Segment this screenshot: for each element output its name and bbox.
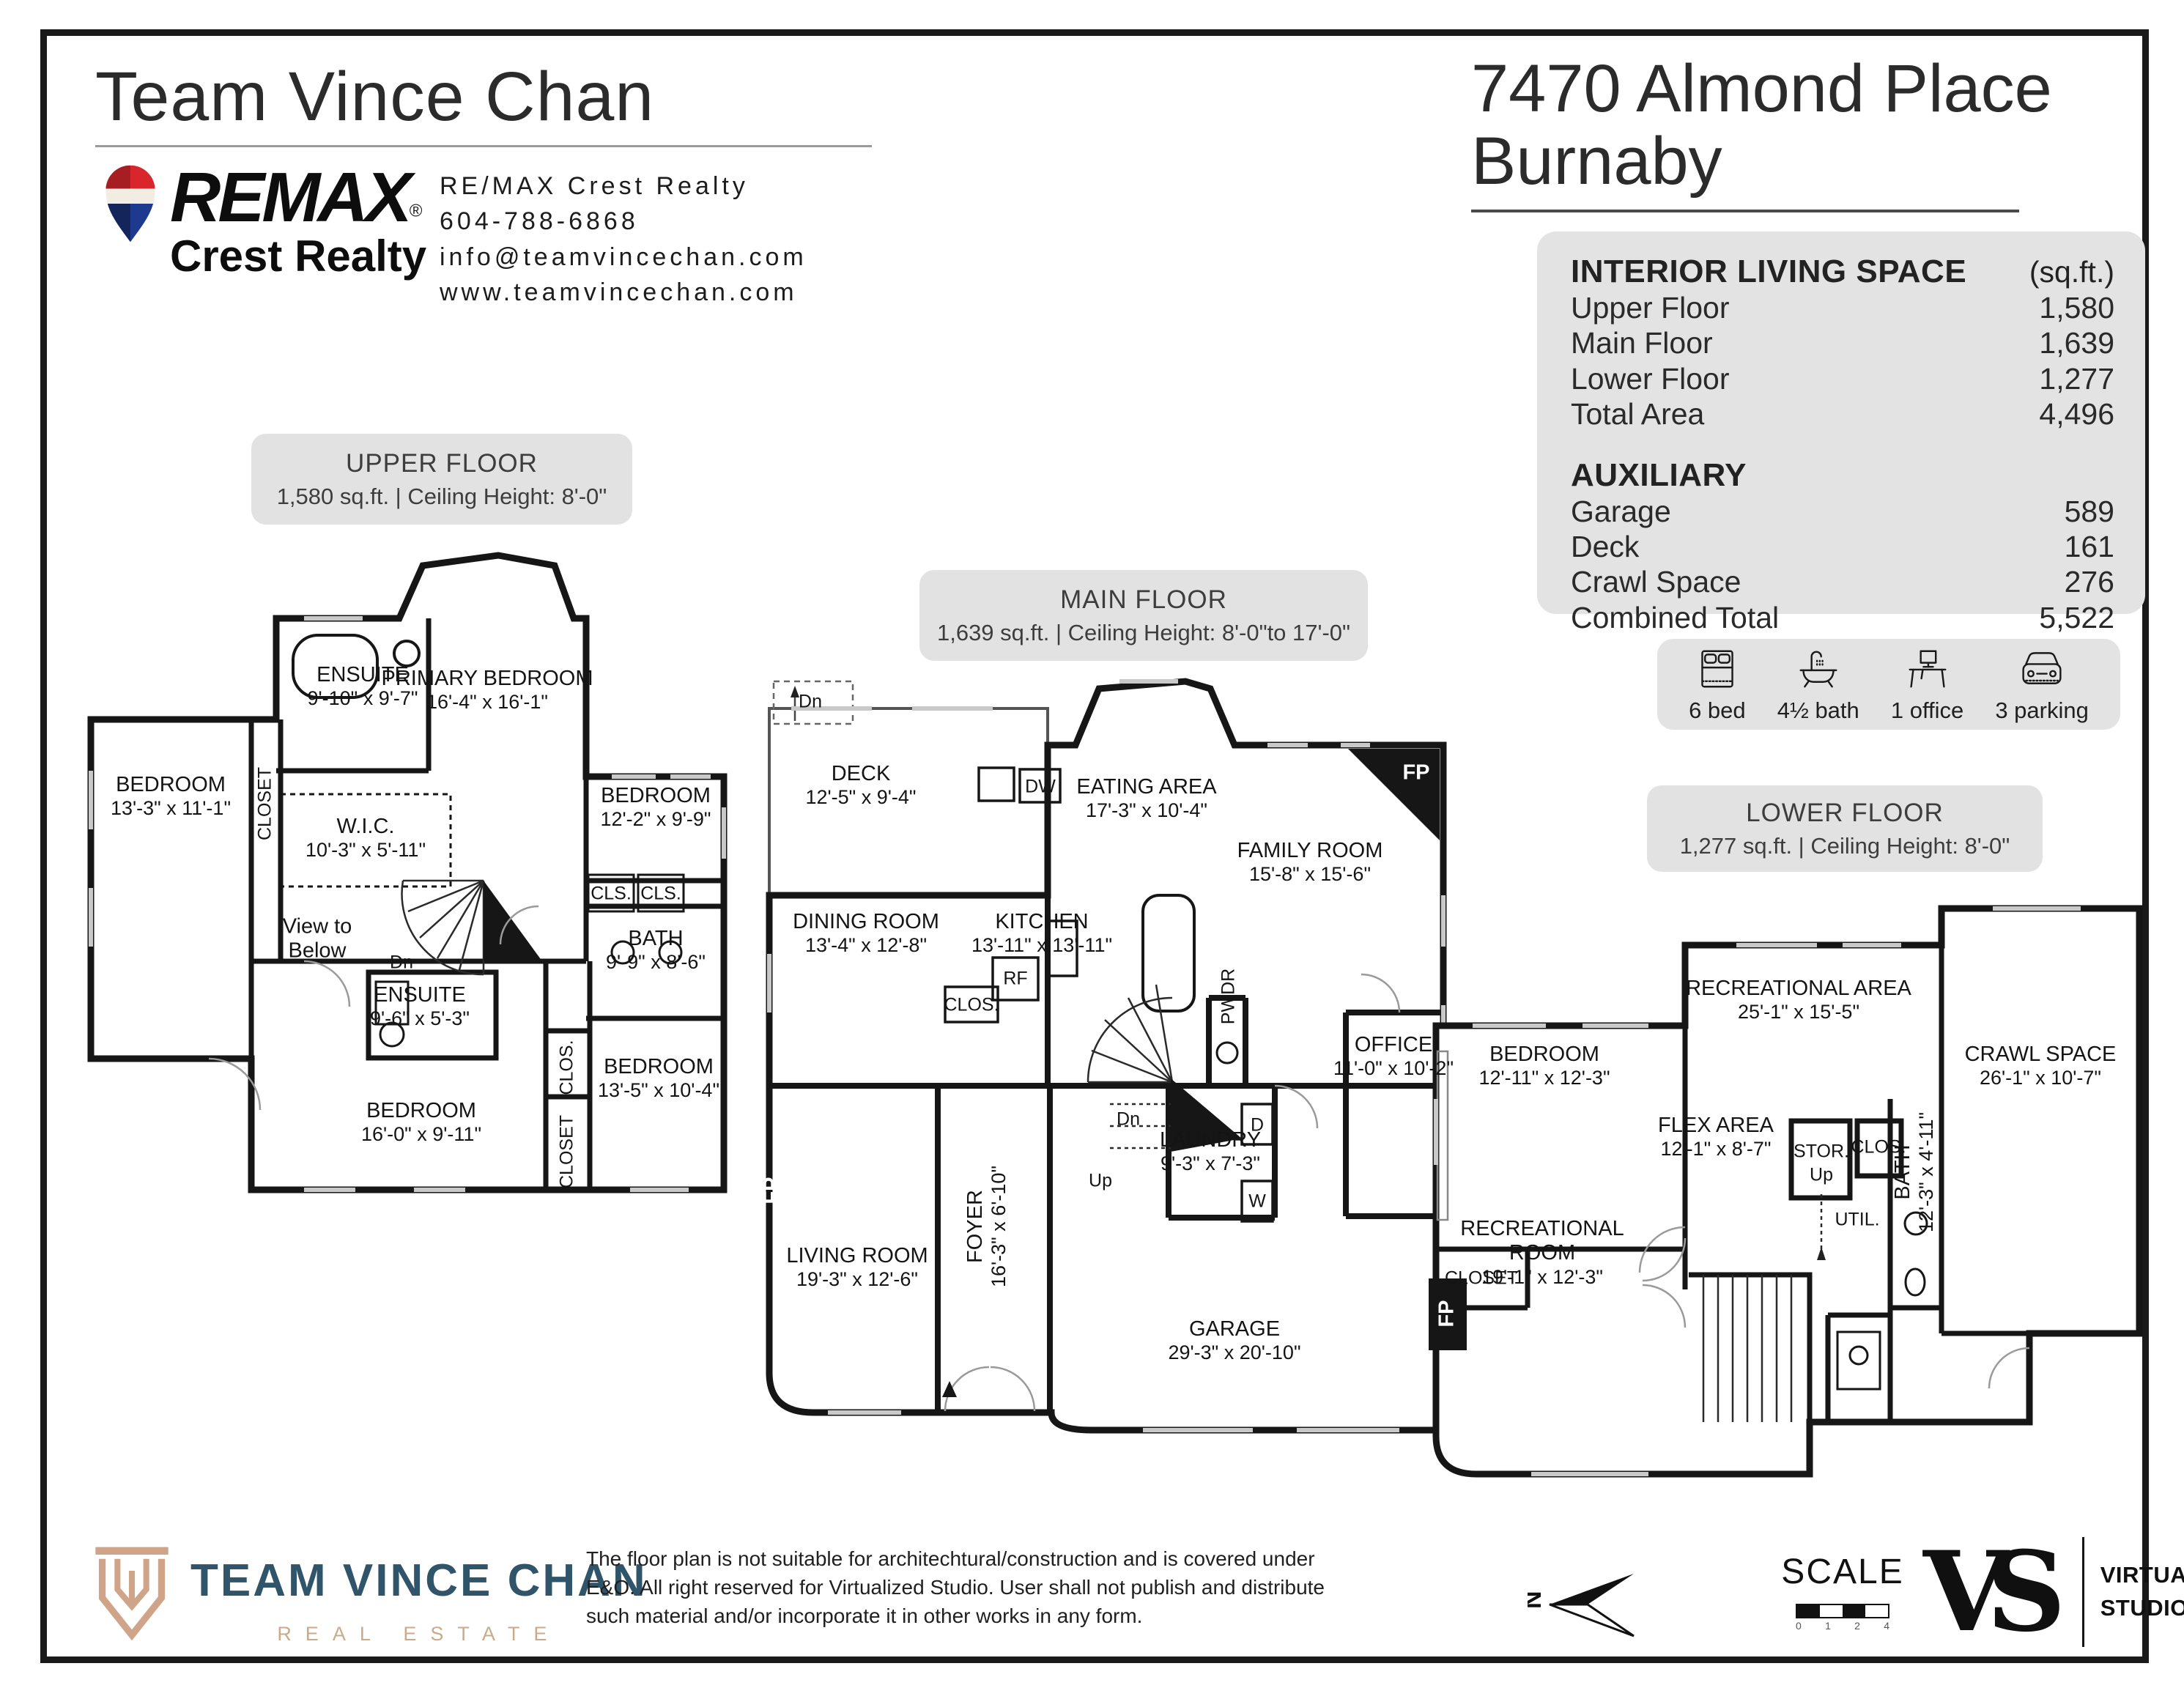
room-label: FAMILY ROOM15'-8" x 15'-6" [1237, 839, 1383, 886]
interior-heading: INTERIOR LIVING SPACE (sq.ft.) [1571, 253, 2114, 290]
room-label: PWDR [1218, 969, 1240, 1024]
feature-label: 6 bed [1689, 697, 1746, 724]
bath-icon [1796, 648, 1840, 695]
room-label: Dn [799, 692, 822, 713]
lower-floor-plan: RECREATIONAL AREA25'-1" x 15'-5"BEDROOM1… [1429, 879, 2154, 1495]
page-title: Team Vince Chan [95, 57, 654, 137]
lower-floor-subtitle: 1,277 sq.ft. | Ceiling Height: 8'-0" [1680, 833, 2010, 859]
room-label: UTIL. [1835, 1210, 1879, 1231]
team-name: TEAM VINCE CHAN [190, 1555, 648, 1607]
area-stats-panel: INTERIOR LIVING SPACE (sq.ft.) Upper Flo… [1537, 232, 2145, 614]
team-tagline: REAL ESTATE [190, 1623, 648, 1646]
feature-label: 4½ bath [1777, 697, 1859, 724]
floor-plan-flyer: { "header": { "title": "Team Vince Chan"… [0, 0, 2184, 1688]
remax-wordmark: REMAX® Crest Realty [170, 163, 426, 278]
room-label: FLEX AREA12'-1" x 8'-7" [1658, 1114, 1774, 1160]
room-label: CLS. [640, 884, 681, 905]
room-label: BATH12'-3" x 4'-11" [1891, 1112, 1938, 1232]
scale-tick: 2 [1854, 1620, 1860, 1632]
stat-row: Garage589 [1571, 494, 2114, 529]
room-label: RECREATIONALROOM19'-1" x 12'-3" [1460, 1217, 1624, 1289]
stat-value: 4,496 [2039, 396, 2114, 432]
feature-1-office: 1 office [1891, 648, 1963, 724]
team-shield-icon [94, 1544, 170, 1645]
north-arrow-icon: N [1528, 1559, 1645, 1647]
contact-block: RE/MAX Crest Realty 604-788-6868 info@te… [440, 169, 807, 310]
contact-email: info@teamvincechan.com [440, 240, 807, 275]
room-label: BEDROOM12'-2" x 9'-9" [600, 784, 711, 831]
stat-row: Main Floor1,639 [1571, 325, 2114, 360]
registered-mark: ® [410, 201, 423, 221]
stat-value: 276 [2065, 564, 2114, 599]
address-divider [1471, 210, 2019, 212]
room-label: DW [1025, 777, 1056, 798]
room-label: DECK12'-5" x 9'-4" [805, 762, 916, 809]
property-address: 7470 Almond Place Burnaby [1471, 53, 2052, 199]
team-logo: TEAM VINCE CHAN REAL ESTATE [94, 1544, 648, 1646]
auxiliary-rows: Garage589Deck161Crawl Space276Combined T… [1571, 494, 2114, 636]
scale-ticks: 0124 [1796, 1620, 1889, 1632]
stat-value: 1,639 [2039, 325, 2114, 360]
fireplace-label: FP [760, 1177, 784, 1204]
room-label: BEDROOM16'-0" x 9'-11" [361, 1099, 481, 1146]
room-label: CLOSET [557, 1115, 578, 1188]
room-label: LAUNDRY9'-3" x 7'-3" [1160, 1128, 1261, 1175]
stat-row: Upper Floor1,580 [1571, 290, 2114, 325]
stat-label: Upper Floor [1571, 290, 1729, 325]
room-label: DINING ROOM13'-4" x 12'-8" [793, 910, 939, 957]
disclaimer-text: The floor plan is not suitable for archi… [586, 1544, 1330, 1631]
room-label: STOR. [1794, 1141, 1849, 1163]
stat-value: 1,580 [2039, 290, 2114, 325]
room-label: CLOS. [944, 995, 999, 1016]
room-label: RF [1003, 969, 1027, 990]
stat-row: Combined Total5,522 [1571, 600, 2114, 635]
room-label: Up [1810, 1165, 1833, 1186]
north-label: N [1528, 1591, 1547, 1609]
interior-rows: Upper Floor1,580Main Floor1,639Lower Flo… [1571, 290, 2114, 432]
stat-label: Lower Floor [1571, 361, 1729, 396]
room-label: W.I.C.10'-3" x 5'-11" [306, 815, 426, 862]
vs-monogram: VS [1923, 1537, 2066, 1647]
room-label: W [1248, 1191, 1266, 1213]
stat-label: Main Floor [1571, 325, 1713, 360]
fireplace-label: FP [1402, 760, 1429, 785]
room-label: BEDROOM13'-5" x 10'-4" [598, 1055, 719, 1102]
room-label: View toBelow [283, 915, 352, 964]
stat-value: 5,522 [2039, 600, 2114, 635]
stat-value: 589 [2065, 494, 2114, 529]
vs-name-line1: VIRTUALIZED [2100, 1559, 2184, 1592]
bed-icon [1695, 648, 1739, 695]
room-label: CLOS. [557, 1040, 578, 1095]
remax-balloon-icon [103, 163, 158, 248]
virtualized-studio-logo: VS VIRTUALIZED STUDIO [1923, 1537, 2184, 1647]
lower-floor-title: LOWER FLOOR [1746, 799, 1944, 828]
main-floor-caption: MAIN FLOOR 1,639 sq.ft. | Ceiling Height… [919, 570, 1368, 661]
main-floor-title: MAIN FLOOR [1060, 585, 1227, 615]
stat-label: Crawl Space [1571, 564, 1741, 599]
address-line2: Burnaby [1471, 125, 2052, 198]
stat-row: Crawl Space276 [1571, 564, 2114, 599]
room-label: ENSUITE9'-6" x 5'-3" [370, 983, 470, 1030]
remax-office: Crest Realty [170, 234, 426, 278]
room-label: Up [1089, 1171, 1112, 1192]
room-label: PRIMARY BEDROOM16'-4" x 16'-1" [382, 667, 593, 714]
stat-row: Deck161 [1571, 529, 2114, 564]
room-label: CRAWL SPACE26'-1" x 10'-7" [1965, 1043, 2117, 1089]
auxiliary-title: AUXILIARY [1571, 457, 2114, 494]
vs-name-line2: STUDIO [2100, 1592, 2184, 1625]
address-line1: 7470 Almond Place [1471, 53, 2052, 125]
room-label: CLS. [591, 884, 632, 905]
fireplace-label: FP [1435, 1300, 1459, 1327]
room-label: BATH9'-9" x 8'-6" [606, 927, 706, 974]
room-label: Dn [1117, 1109, 1140, 1130]
feature-label: 3 parking [1995, 697, 2089, 724]
stat-label: Garage [1571, 494, 1671, 529]
scale-label: SCALE [1773, 1552, 1912, 1592]
upper-floor-plan: ENSUITE9'-10" x 9'-7"PRIMARY BEDROOM16'-… [84, 551, 747, 1276]
room-label: OFFICE11'-0" x 10'-2" [1333, 1033, 1454, 1080]
feature-4-bath: 4½ bath [1777, 648, 1859, 724]
room-label: CLOSET [255, 767, 276, 840]
room-label: BEDROOM12'-11" x 12'-3" [1478, 1043, 1610, 1089]
office-icon [1906, 648, 1950, 695]
contact-brokerage: RE/MAX Crest Realty [440, 169, 807, 204]
main-floor-subtitle: 1,639 sq.ft. | Ceiling Height: 8'-0"to 1… [937, 620, 1350, 646]
room-label: D [1251, 1115, 1264, 1136]
feature-6-bed: 6 bed [1689, 648, 1746, 724]
upper-floor-subtitle: 1,580 sq.ft. | Ceiling Height: 8'-0" [277, 484, 607, 510]
main-floor-plan: DnDECK12'-5" x 9'-4"DWEATING AREA17'-3" … [762, 675, 1465, 1437]
feature-label: 1 office [1891, 697, 1963, 724]
room-label: GARAGE29'-3" x 20'-10" [1168, 1317, 1300, 1364]
title-divider [95, 145, 872, 147]
stat-row: Lower Floor1,277 [1571, 361, 2114, 396]
scale-tick: 4 [1884, 1620, 1889, 1632]
vs-name: VIRTUALIZED STUDIO [2100, 1559, 2184, 1625]
upper-floor-caption: UPPER FLOOR 1,580 sq.ft. | Ceiling Heigh… [251, 434, 632, 525]
room-label: BEDROOM13'-3" x 11'-1" [111, 773, 231, 820]
stat-label: Combined Total [1571, 600, 1779, 635]
parking-icon [2019, 648, 2065, 695]
scale-tick: 0 [1796, 1620, 1802, 1632]
contact-phone: 604-788-6868 [440, 204, 807, 239]
features-panel: 6 bed4½ bath1 office3 parking [1657, 639, 2120, 730]
remax-logo: REMAX® Crest Realty [103, 163, 426, 278]
vs-divider [2082, 1537, 2084, 1647]
room-label: RECREATIONAL AREA25'-1" x 15'-5" [1686, 977, 1911, 1023]
contact-website: www.teamvincechan.com [440, 275, 807, 310]
room-label: FOYER16'-3" x 6'-10" [963, 1166, 1010, 1287]
feature-3-parking: 3 parking [1995, 648, 2089, 724]
room-label: LIVING ROOM19'-3" x 12'-6" [786, 1244, 928, 1291]
remax-name: REMAX [170, 158, 410, 237]
stat-value: 1,277 [2039, 361, 2114, 396]
stat-value: 161 [2065, 529, 2114, 564]
upper-floor-title: UPPER FLOOR [346, 449, 538, 478]
scale-tick: 1 [1825, 1620, 1831, 1632]
room-label: KITCHEN13'-11" x 13'-11" [971, 910, 1112, 957]
room-label: Dn [390, 952, 413, 974]
lower-floor-caption: LOWER FLOOR 1,277 sq.ft. | Ceiling Heigh… [1647, 785, 2043, 872]
interior-title: INTERIOR LIVING SPACE [1571, 253, 1966, 290]
scale-bar [1796, 1604, 1889, 1618]
stat-label: Total Area [1571, 396, 1704, 432]
scale-indicator: SCALE 0124 [1773, 1552, 1912, 1632]
room-label: EATING AREA17'-3" x 10'-4" [1076, 775, 1216, 822]
stat-row: Total Area4,496 [1571, 396, 2114, 432]
stat-label: Deck [1571, 529, 1639, 564]
interior-unit: (sq.ft.) [2029, 255, 2114, 289]
